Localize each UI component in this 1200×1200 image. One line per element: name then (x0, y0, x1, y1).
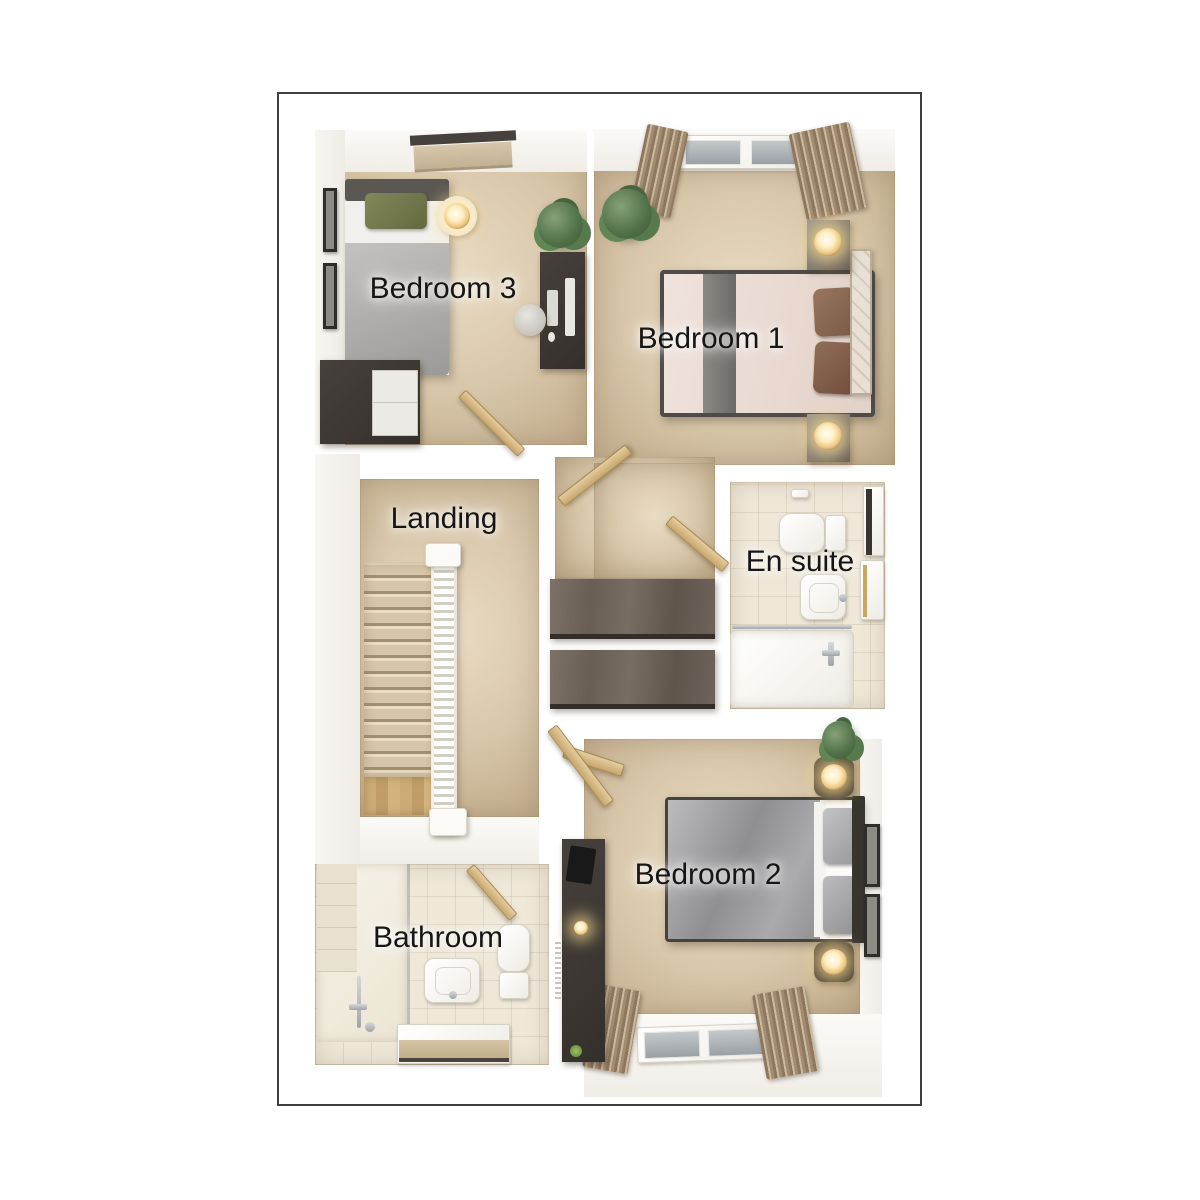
desk-lamp (574, 921, 588, 935)
cabinet-trim (863, 565, 867, 617)
desk (540, 252, 585, 369)
drawer-divider (372, 402, 418, 403)
toilet-cistern (499, 972, 529, 999)
room-bedroom-1 (594, 129, 895, 465)
landing-left-wall (315, 454, 360, 869)
toilet-roll-holder (791, 489, 809, 498)
keyboard (547, 290, 558, 326)
bedroom-3-window-blind (413, 141, 512, 172)
wardrobe (550, 650, 715, 709)
table-lamp (444, 203, 470, 229)
room-label-bathroom: Bathroom (373, 921, 503, 955)
bed-duvet (345, 243, 449, 375)
bedroom-3-picture-frame (323, 188, 337, 252)
desk-plant (570, 1045, 582, 1057)
potted-plant (822, 721, 856, 759)
floor-plan-image: Bedroom 3 Bedroom 1 Landing En suite Bed… (0, 0, 1200, 1200)
newel-post (425, 543, 461, 567)
window-pane (685, 140, 741, 165)
bedside-lamp (821, 764, 847, 790)
potted-plant (602, 189, 652, 239)
stair-banister (431, 549, 457, 835)
computer-monitor (565, 278, 575, 336)
window-blind (399, 1040, 509, 1062)
tiled-wall (317, 864, 357, 972)
bed-headboard (850, 249, 872, 395)
potted-plant (537, 202, 583, 248)
radiator (555, 939, 561, 999)
room-label-bedroom-1: Bedroom 1 (638, 322, 785, 356)
shelf-unit (863, 486, 884, 556)
bedside-lamp (821, 949, 847, 975)
room-label-landing: Landing (391, 502, 498, 536)
basin-tap (839, 594, 847, 602)
floor-plan-panel: Bedroom 3 Bedroom 1 Landing En suite Bed… (277, 92, 922, 1106)
stool (514, 304, 546, 336)
bathtub (730, 630, 854, 708)
room-label-en-suite: En suite (746, 545, 854, 579)
shower-riser-rail (357, 976, 361, 1028)
bedroom-2-picture-frame (864, 894, 880, 957)
storage-cabinet (860, 560, 884, 620)
room-bedroom-2 (584, 739, 882, 1097)
shower-mixer (349, 1004, 367, 1010)
wardrobe (550, 579, 715, 639)
wash-basin (424, 958, 480, 1003)
room-label-bedroom-2: Bedroom 2 (635, 858, 782, 892)
basin-bowl (809, 583, 839, 613)
room-label-bedroom-3: Bedroom 3 (370, 272, 517, 306)
shower-fixture (822, 650, 840, 656)
bedroom-2-desk (562, 839, 605, 1062)
dresser-drawers (372, 370, 418, 436)
wash-basin (800, 574, 846, 620)
window-pane (708, 1028, 765, 1057)
bedside-lamp (814, 422, 842, 450)
window-pane (644, 1030, 701, 1059)
bedroom-2-picture-frame (864, 824, 880, 887)
shower-head (365, 1022, 375, 1032)
bedside-lamp (814, 228, 842, 256)
basin-tap (449, 991, 457, 999)
mouse (548, 332, 555, 342)
bedroom-3-picture-frame (323, 263, 337, 329)
shelf-trim (866, 489, 872, 555)
green-pillow (365, 193, 427, 229)
room-bathroom (315, 864, 549, 1065)
room-en-suite (730, 482, 885, 709)
newel-post (429, 808, 467, 836)
bedroom-2-window (636, 1023, 772, 1064)
shower-rail (732, 625, 852, 629)
dresser (320, 360, 420, 444)
hallway-carpet (594, 463, 715, 579)
laptop (566, 845, 597, 884)
